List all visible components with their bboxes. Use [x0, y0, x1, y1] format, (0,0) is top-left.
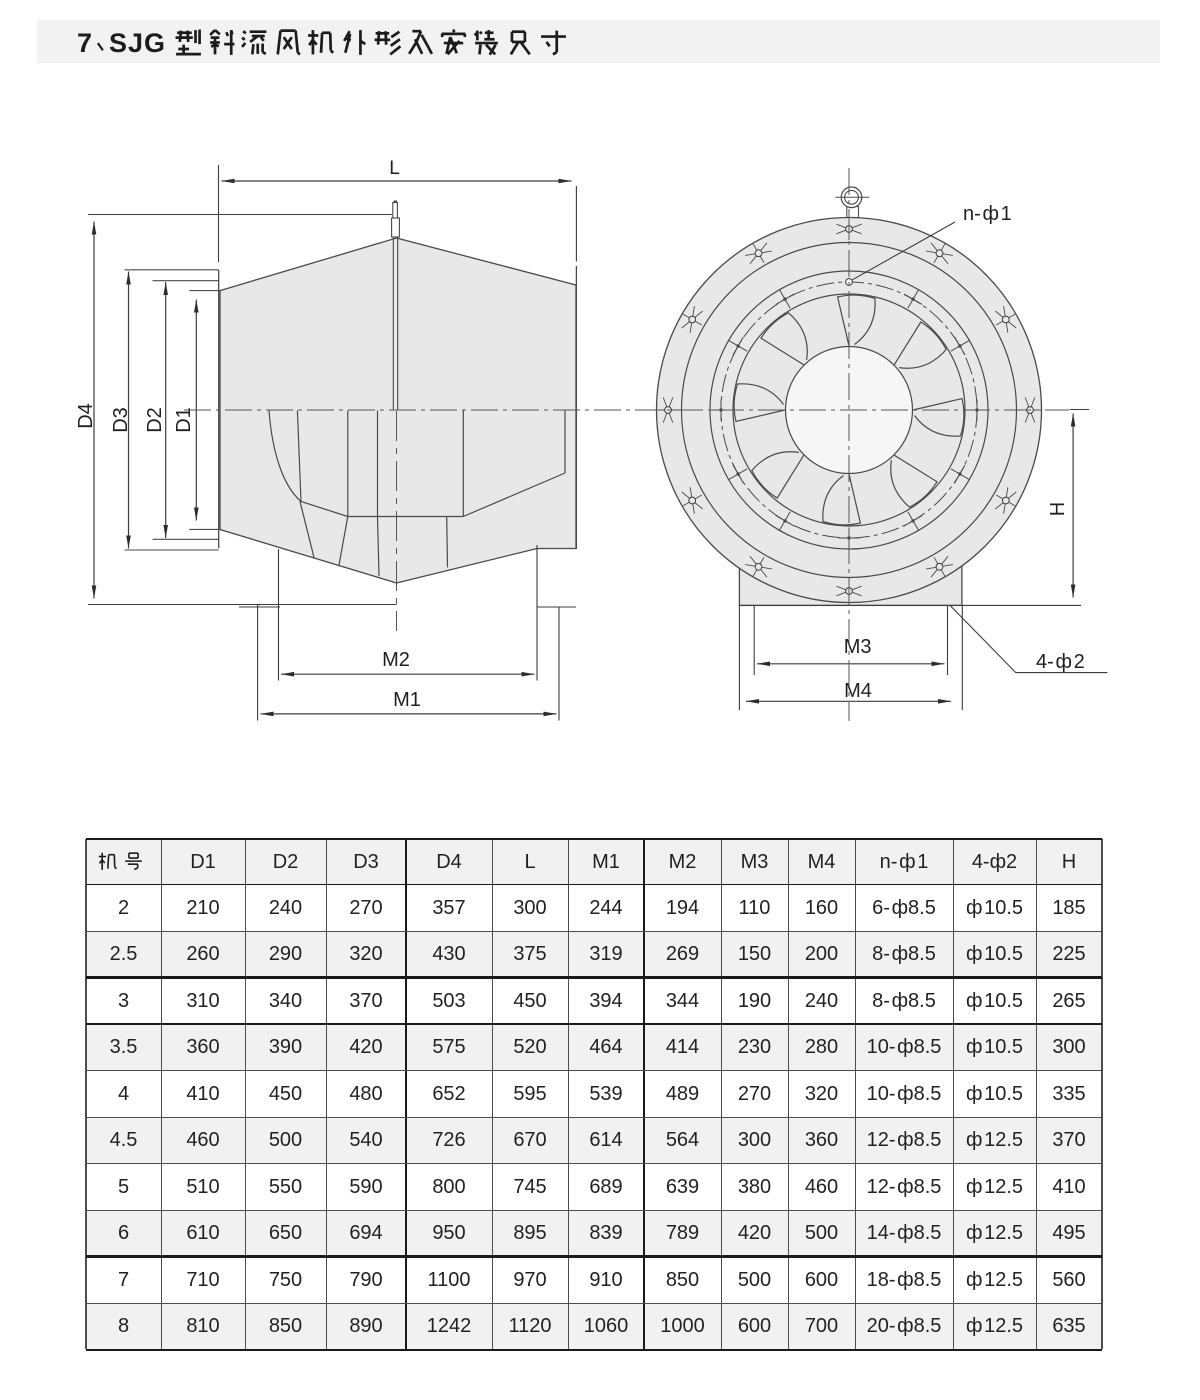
svg-text:D2: D2 [144, 407, 166, 433]
svg-text:D4: D4 [75, 403, 97, 429]
svg-text:M4: M4 [844, 680, 872, 702]
svg-text:M1: M1 [393, 689, 421, 711]
svg-text:n- ф 1: n- ф 1 [963, 203, 1012, 225]
svg-text:4- ф 2: 4- ф 2 [1036, 651, 1085, 673]
svg-text:H: H [1047, 502, 1069, 516]
svg-text:L: L [389, 158, 400, 179]
svg-text:M3: M3 [844, 636, 872, 658]
svg-text:D1: D1 [173, 407, 195, 433]
svg-text:M2: M2 [382, 649, 410, 671]
svg-text:D3: D3 [110, 407, 132, 433]
